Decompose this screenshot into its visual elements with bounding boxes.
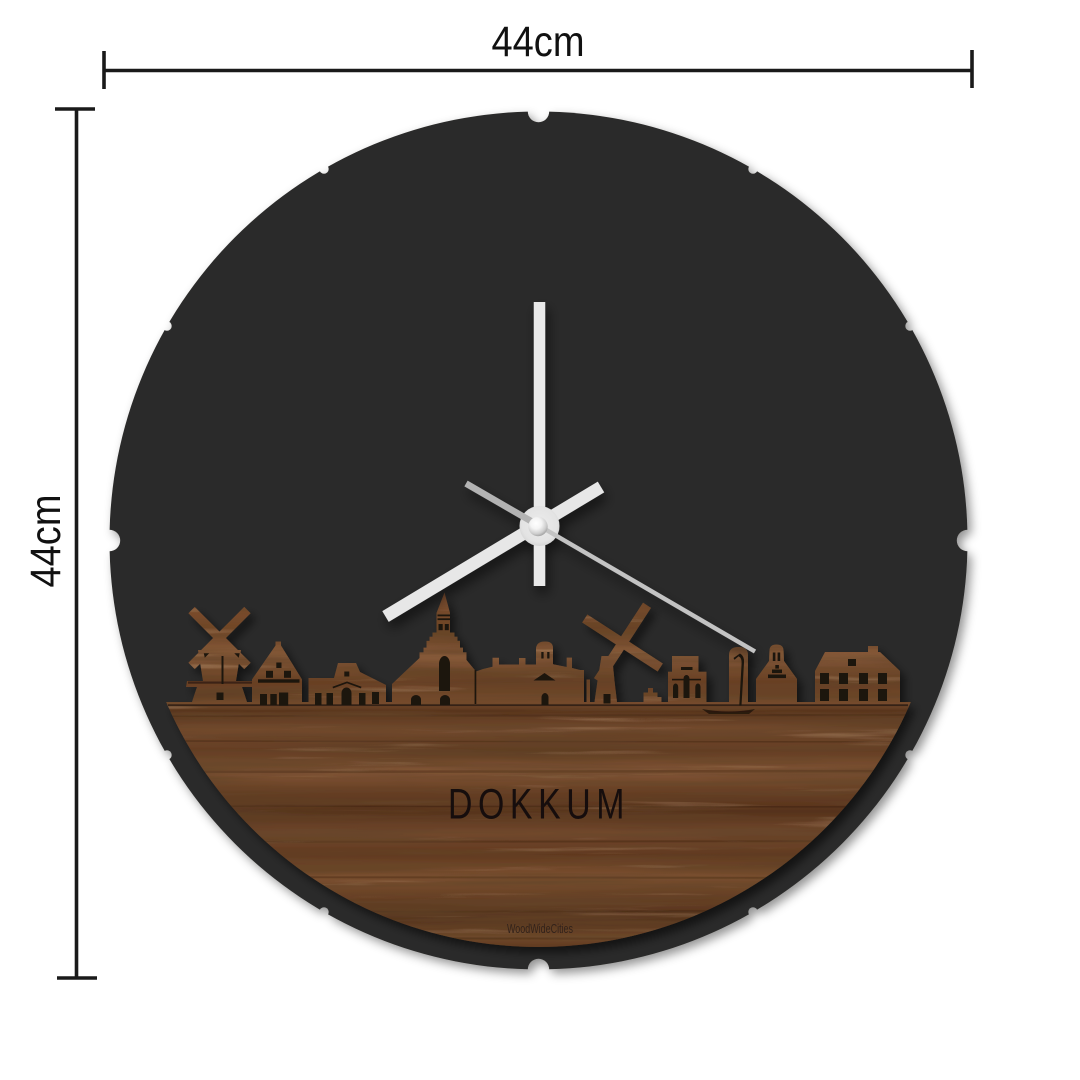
svg-text:DOKKUM: DOKKUM — [448, 782, 630, 829]
svg-text:44cm: 44cm — [492, 18, 585, 66]
svg-text:44cm: 44cm — [22, 495, 70, 588]
svg-text:WoodWideCities: WoodWideCities — [507, 922, 573, 936]
